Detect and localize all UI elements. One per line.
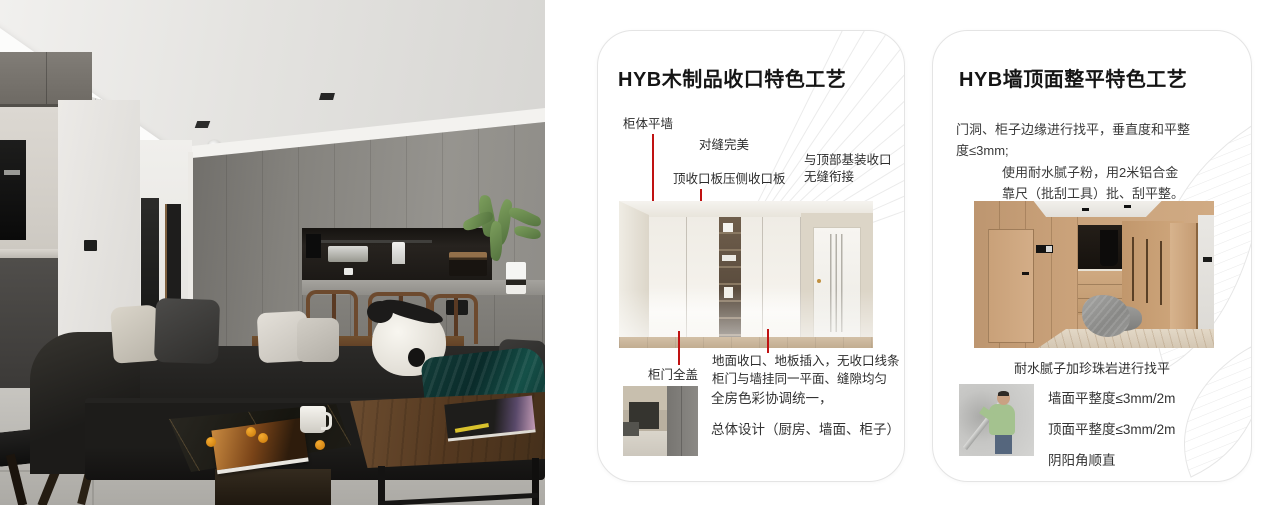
hanging-clothes xyxy=(1100,230,1118,266)
thumb-gray-cabinet xyxy=(667,386,698,456)
wardrobe-render-image xyxy=(619,201,873,348)
ceiling-vent-icon xyxy=(195,121,211,128)
label-floor-finishing: 地面收口、地板插入，无收口线条 柜门与墙挂同一平面、缝隙均匀 xyxy=(712,352,900,388)
spec-wall-flatness: 墙面平整度≤3mm/2m xyxy=(1048,387,1175,407)
thermostat xyxy=(1036,245,1053,253)
living-room-photo xyxy=(0,0,545,505)
label-door-full-cover: 柜门全盖 xyxy=(648,367,698,384)
label-top-joint-line1: 与顶部基装收口 xyxy=(804,152,899,169)
kumquat-fruit xyxy=(315,440,325,450)
espresso-machine xyxy=(328,246,368,262)
coffee-grinder xyxy=(306,234,321,258)
worker-thumbnail-image xyxy=(959,384,1034,456)
annotation-line xyxy=(767,329,769,353)
spec-ceiling-flatness: 顶面平整度≤3mm/2m xyxy=(1048,418,1175,438)
paragraph1-line2: 度≤3mm; xyxy=(956,140,1190,161)
ceiling-vent-icon xyxy=(319,93,335,100)
table-leg xyxy=(378,466,385,505)
kumquat-fruit xyxy=(206,437,216,447)
label-cabinet-flush-wall: 柜体平墙 xyxy=(623,116,673,133)
render-wood-floor xyxy=(619,337,873,348)
capsule-machine xyxy=(392,242,405,264)
label-top-joint-line2: 无缝衔接 xyxy=(804,169,899,186)
door-handle-slot xyxy=(1160,241,1162,305)
label-perfect-seam: 对缝完美 xyxy=(699,137,749,154)
light-reflection xyxy=(619,289,873,337)
label-top-closing-board: 顶收口板压侧收口板 xyxy=(673,171,786,188)
leveling-paragraph-2: 使用耐水腻子粉，用2米铝合金 靠尺（批刮工具）批、刮平整。 xyxy=(1002,162,1184,204)
niche-rail xyxy=(310,240,432,243)
kumquat-fruit xyxy=(246,427,256,437)
paragraph2-line1: 使用耐水腻子粉，用2米铝合金 xyxy=(1002,162,1184,183)
card-title: HYB墙顶面整平特色工艺 xyxy=(959,63,1187,92)
worker-head xyxy=(997,391,1010,405)
card-wall-leveling: HYB墙顶面整平特色工艺 门洞、柜子边缘进行找平，垂直度和平整 度≤3mm; 使… xyxy=(932,30,1252,482)
label-floor-finishing-line2: 柜门与墙挂同一平面、缝隙均匀 xyxy=(712,370,900,388)
worker-legs xyxy=(995,435,1012,454)
label-top-joint: 与顶部基装收口 无缝衔接 xyxy=(804,152,899,186)
card-wood-finishing: HYB木制品收口特色工艺 柜体平墙 对缝完美 顶收口板压侧收口板 与顶部基装收口… xyxy=(597,30,905,482)
plant-pot xyxy=(506,262,526,294)
spec-corner-straightness: 阴阳角顺直 xyxy=(1048,449,1175,469)
worker-body xyxy=(989,404,1015,435)
downlight xyxy=(1082,208,1089,211)
room-thumbnail-image xyxy=(623,386,698,456)
thumb-sofa xyxy=(623,422,639,436)
photo-white-wall xyxy=(1198,215,1214,348)
flatness-specs: 墙面平整度≤3mm/2m 顶面平整度≤3mm/2m 阴阳角顺直 xyxy=(1048,387,1175,480)
pillow-white xyxy=(297,318,339,362)
card-title: HYB木制品收口特色工艺 xyxy=(618,63,846,92)
design-summary: 全房色彩协调统一， 总体设计（厨房、墙面、柜子） xyxy=(711,387,900,449)
open-room-door xyxy=(1170,223,1198,341)
shelf-decor xyxy=(722,255,736,261)
coffee-mug xyxy=(300,406,326,433)
photo-caption: 耐水腻子加珍珠岩进行找平 xyxy=(933,358,1251,377)
kitchen-counter xyxy=(0,249,62,258)
door-handle-slot xyxy=(1132,237,1134,301)
potted-plant xyxy=(460,195,545,300)
page: HYB木制品收口特色工艺 柜体平墙 对缝完美 顶收口板压侧收口板 与顶部基装收口… xyxy=(0,0,1280,505)
stone-coffee-table-base xyxy=(215,469,331,505)
shelf-decor xyxy=(723,223,733,232)
door-handle-slot xyxy=(1146,239,1148,303)
wall-sign xyxy=(1203,257,1212,262)
downlight xyxy=(1124,205,1131,208)
coffee-cup xyxy=(344,268,353,275)
label-floor-finishing-line1: 地面收口、地板插入，无收口线条 xyxy=(712,352,900,370)
plant-leaf xyxy=(489,221,503,262)
annotation-line xyxy=(678,331,680,365)
design-summary-line2: 总体设计（厨房、墙面、柜子） xyxy=(711,418,900,438)
light-switch xyxy=(84,240,97,251)
wood-room-photo xyxy=(974,201,1214,348)
paragraph1-line1: 门洞、柜子边缘进行找平，垂直度和平整 xyxy=(956,119,1190,140)
door-handle xyxy=(817,279,821,283)
kitchen-upper-cabinet xyxy=(0,52,92,107)
coffee-machine xyxy=(0,140,26,240)
photo-wood-door xyxy=(988,229,1034,343)
leveling-paragraph-1: 门洞、柜子边缘进行找平，垂直度和平整 度≤3mm; xyxy=(956,119,1190,161)
design-summary-line1: 全房色彩协调统一， xyxy=(711,387,900,407)
pillow-dark-gray xyxy=(154,298,220,364)
kumquat-fruit xyxy=(258,433,268,443)
